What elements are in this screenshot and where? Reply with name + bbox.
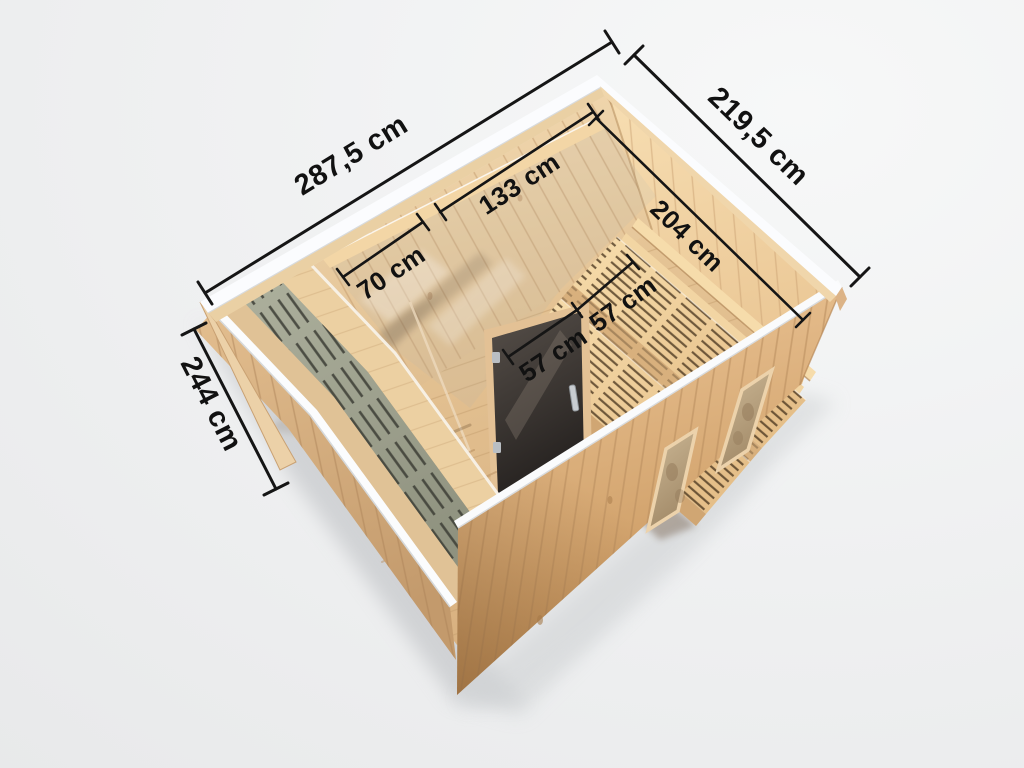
diagram-canvas: 287,5 cm 219,5 cm 244 cm 133 cm 204 cm	[0, 0, 1024, 768]
sauna-dimension-diagram: 287,5 cm 219,5 cm 244 cm 133 cm 204 cm	[0, 0, 1024, 768]
dimension-tick	[264, 483, 288, 495]
dimension-label: 287,5 cm	[289, 109, 414, 203]
door-hinge-bottom	[493, 442, 501, 453]
dimension-tick	[605, 31, 619, 53]
door-hinge-top	[492, 352, 500, 363]
wood-knot	[537, 615, 543, 625]
wood-knot	[608, 496, 613, 504]
